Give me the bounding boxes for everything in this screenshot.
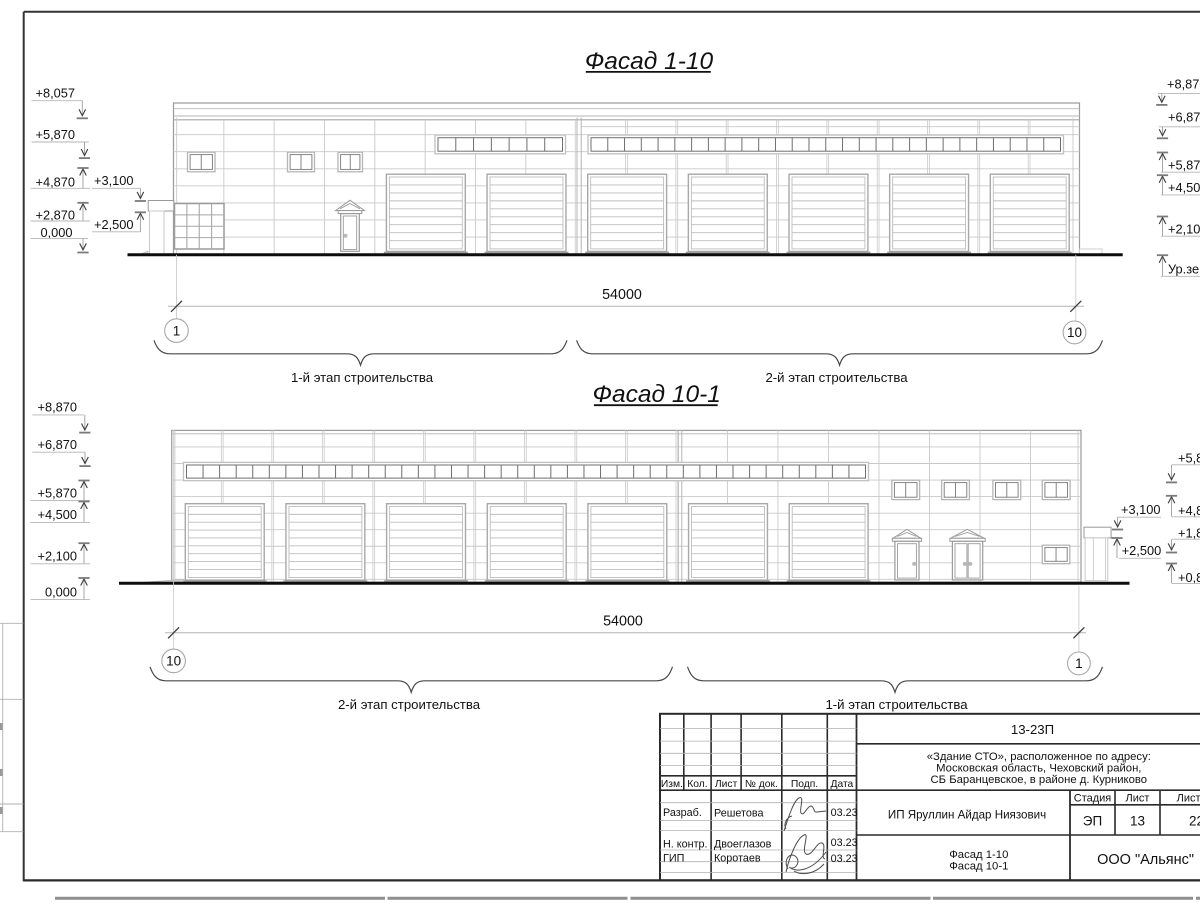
svg-text:+2,100: +2,100 <box>38 549 78 564</box>
svg-text:+3,100: +3,100 <box>94 173 134 188</box>
svg-text:«Здание СТО», расположенное по: «Здание СТО», расположенное по адресу: <box>927 751 1151 763</box>
svg-text:1-й этап строительства: 1-й этап строительства <box>825 697 968 712</box>
svg-text:Фасад 1-10: Фасад 1-10 <box>949 849 1008 861</box>
svg-text:+3,100: +3,100 <box>1121 502 1161 517</box>
svg-text:ЭП: ЭП <box>1083 814 1102 829</box>
svg-text:+5,870: +5,870 <box>1168 158 1200 173</box>
svg-text:10: 10 <box>1067 325 1082 340</box>
svg-text:54000: 54000 <box>603 614 643 630</box>
svg-text:Фасад 10-1: Фасад 10-1 <box>593 381 721 408</box>
svg-text:1-й этап строительства: 1-й этап строительства <box>291 370 434 385</box>
svg-text:Стадия: Стадия <box>1074 792 1112 804</box>
svg-text:№ док.: № док. <box>745 779 778 790</box>
svg-text:+5,870: +5,870 <box>38 486 78 501</box>
svg-text:Н. контр.: Н. контр. <box>663 838 708 850</box>
svg-text:03.23: 03.23 <box>831 837 858 849</box>
svg-text:+8,057: +8,057 <box>36 86 76 101</box>
svg-text:+4,870: +4,870 <box>36 175 76 190</box>
svg-text:+0,800: +0,800 <box>1178 570 1200 585</box>
svg-text:Лист: Лист <box>715 779 738 790</box>
svg-text:10: 10 <box>166 654 181 669</box>
svg-text:+1,800: +1,800 <box>1178 526 1200 541</box>
svg-text:03.23: 03.23 <box>831 807 858 819</box>
svg-text:+8,870: +8,870 <box>1167 76 1200 91</box>
svg-text:Изм.: Изм. <box>661 779 683 790</box>
svg-text:Разраб.: Разраб. <box>663 807 702 819</box>
svg-text:Коротаев: Коротаев <box>714 852 761 864</box>
svg-text:ООО "Альянс": ООО "Альянс" <box>1097 852 1194 868</box>
svg-text:+5,870: +5,870 <box>1178 451 1200 466</box>
svg-text:+4,500: +4,500 <box>38 507 78 522</box>
svg-text:+6,870: +6,870 <box>38 437 78 452</box>
svg-text:+2,500: +2,500 <box>1122 543 1162 558</box>
svg-text:03.23: 03.23 <box>831 853 858 865</box>
svg-text:22: 22 <box>1189 814 1200 829</box>
svg-text:Решетова: Решетова <box>714 808 764 820</box>
svg-text:+6,870: +6,870 <box>1168 110 1200 125</box>
svg-text:Двоеглазов: Двоеглазов <box>714 838 772 850</box>
svg-text:0,000: 0,000 <box>45 584 77 599</box>
svg-text:2-й этап строительства: 2-й этап строительства <box>765 370 908 385</box>
svg-text:Дата: Дата <box>830 779 853 790</box>
svg-text:Московская область, Чеховский: Московская область, Чеховский район, <box>936 763 1141 775</box>
svg-text:Листов: Листов <box>1177 792 1200 804</box>
svg-text:Подп.: Подп. <box>791 779 818 790</box>
svg-text:ИП Яруллин Айдар Ниязович: ИП Яруллин Айдар Ниязович <box>888 809 1046 822</box>
svg-text:+2,100: +2,100 <box>1168 221 1200 236</box>
svg-text:+4,870: +4,870 <box>1178 503 1200 518</box>
svg-text:+2,500: +2,500 <box>94 217 134 232</box>
svg-text:1: 1 <box>1075 656 1083 671</box>
svg-text:13: 13 <box>1130 814 1145 829</box>
svg-text:1: 1 <box>173 323 181 338</box>
svg-text:Кол.: Кол. <box>687 779 707 790</box>
svg-text:ГИП: ГИП <box>663 852 684 864</box>
svg-text:+2,870: +2,870 <box>36 207 76 222</box>
svg-text:+4,500: +4,500 <box>1168 180 1200 195</box>
svg-text:+5,870: +5,870 <box>36 127 76 142</box>
svg-text:Лист: Лист <box>1126 792 1150 804</box>
svg-text:Фасад 10-1: Фасад 10-1 <box>949 861 1008 873</box>
svg-text:+8,870: +8,870 <box>38 400 78 415</box>
svg-text:54000: 54000 <box>602 287 642 303</box>
svg-text:2-й этап строительства: 2-й этап строительства <box>338 697 481 712</box>
svg-text:СБ Баранцевское, в районе д. К: СБ Баранцевское, в районе д. Курниково <box>931 774 1148 786</box>
svg-text:0,000: 0,000 <box>40 225 72 240</box>
svg-text:13-23П: 13-23П <box>1011 722 1054 737</box>
svg-text:Ур.земли: Ур.земли <box>1168 262 1200 277</box>
